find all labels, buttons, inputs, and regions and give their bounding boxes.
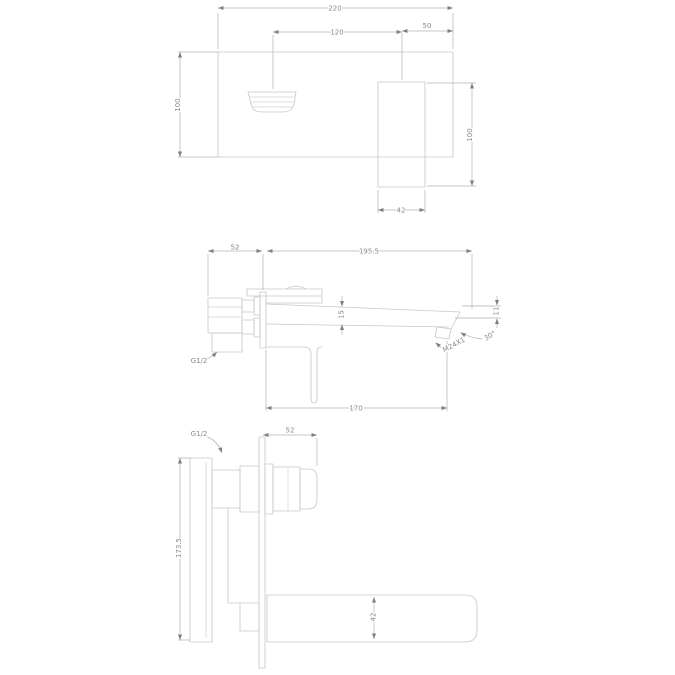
supply-pipe-link [228, 508, 240, 603]
front-dimensions: 220 120 50 100 100 42 [174, 5, 476, 215]
spout-top-line [266, 304, 460, 312]
dim-text-body-depth: 52 [231, 244, 240, 252]
dim-text-spout-to-edge: 50 [423, 22, 432, 30]
side-view: 52 173.5 42 G1/2 [175, 427, 477, 669]
pipe-fitting [254, 318, 260, 337]
inwall-body [208, 298, 242, 333]
inlet-leader [206, 352, 217, 359]
plan-view: 52 195.5 170 15 11 30° M24X1 G1/2 [191, 244, 501, 413]
side-outline [190, 437, 477, 668]
dim-text-tip-angle: 30° [483, 329, 498, 342]
inwall-body-lower [212, 333, 242, 352]
valve-housing-front [240, 466, 259, 512]
side-dimensions: 52 173.5 42 G1/2 [175, 427, 378, 641]
inwall-body-side [190, 458, 212, 642]
pipe-fitting [242, 300, 254, 312]
valve-housing-rear [212, 470, 240, 508]
dim-text-spout-mid-height: 15 [338, 310, 346, 319]
wall-plate-edge [260, 292, 266, 348]
dim-text-handle-depth: 52 [286, 427, 295, 435]
spout-tip-cut [451, 312, 460, 329]
handle-trim-ring [265, 464, 273, 514]
wall-plate-outline [218, 52, 453, 157]
inwall-body-steps [208, 307, 242, 317]
technical-drawing: 220 120 50 100 100 42 [0, 0, 675, 675]
handle-cap [300, 469, 317, 509]
dim-text-inlet-thread-side: G1/2 [191, 430, 208, 438]
aerator-outline [435, 327, 451, 339]
spout-supply-box [240, 603, 259, 631]
dim-text-total-width: 220 [328, 5, 341, 13]
dim-text-handle-to-spout: 120 [330, 29, 343, 37]
drawing-canvas: 220 120 50 100 100 42 [0, 0, 675, 675]
plan-dimensions: 52 195.5 170 15 11 30° M24X1 G1/2 [191, 244, 501, 413]
dim-text-spout-width: 42 [397, 207, 406, 215]
handle-lever [266, 347, 322, 403]
handle-knob-ridges [250, 97, 294, 107]
front-outline [218, 52, 453, 187]
front-view: 220 120 50 100 100 42 [174, 5, 476, 215]
spout-bottom-line [266, 324, 449, 327]
plan-outline [208, 286, 460, 403]
inlet-leader-side [207, 437, 222, 453]
dim-text-spout-section: 42 [370, 613, 378, 622]
spout-front-outline [378, 82, 425, 187]
dim-text-wall-to-aerator: 170 [349, 405, 362, 413]
dim-text-spout-height: 100 [466, 128, 474, 141]
dim-text-spout-reach: 195.5 [359, 248, 379, 256]
handle-grip-arc [286, 286, 306, 289]
dim-text-inlet-thread-plan: G1/2 [191, 357, 208, 365]
wall-plate-side [259, 437, 265, 668]
dim-text-body-height: 173.5 [175, 538, 183, 558]
dim-text-plate-height: 100 [174, 98, 182, 111]
handle-bar-edge [247, 289, 322, 303]
handle-body-side [273, 467, 300, 511]
dim-text-spout-tip-height: 11 [493, 307, 501, 316]
pipe-fitting [254, 297, 260, 315]
pipe-fitting [242, 320, 254, 334]
